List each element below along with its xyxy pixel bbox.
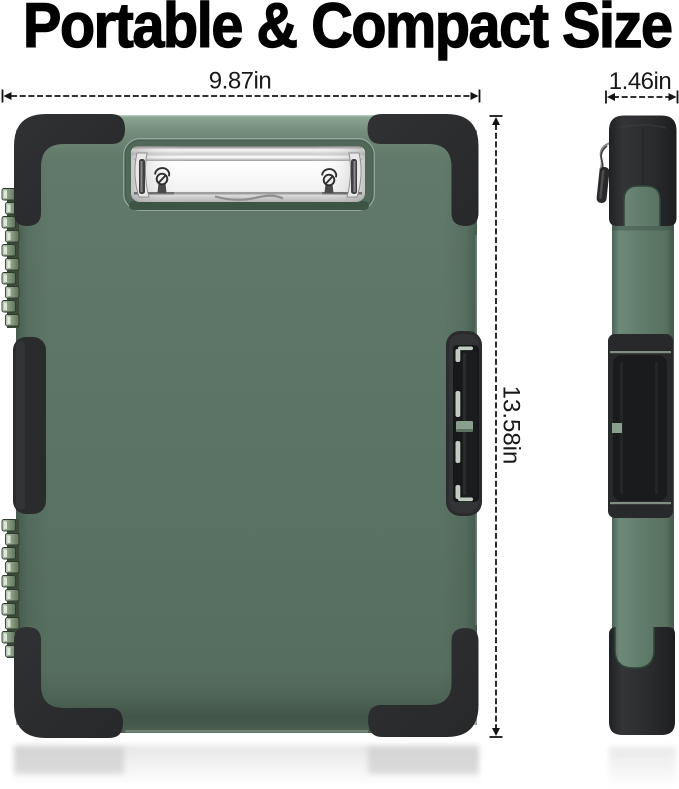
svg-text:9.87in: 9.87in	[209, 68, 271, 95]
svg-text:1.46in: 1.46in	[609, 68, 671, 95]
svg-text:13.58in: 13.58in	[498, 386, 525, 465]
